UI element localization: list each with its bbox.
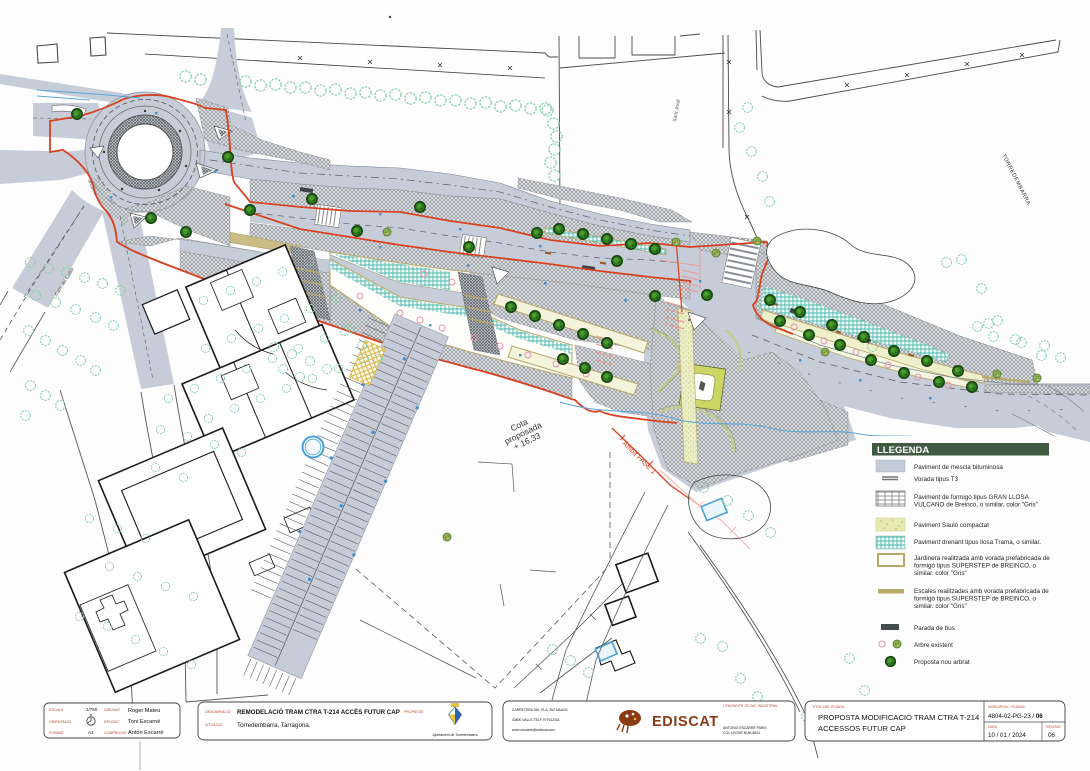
svg-text:COL·LEGIAT NÚM 8624: COL·LEGIAT NÚM 8624 — [723, 730, 760, 735]
svg-text:PROPOSTA MODIFICACIÓ TRAM CTRA: PROPOSTA MODIFICACIÓ TRAM CTRA T-214 — [818, 713, 979, 722]
svg-text:Roger Mateu: Roger Mateu — [128, 708, 160, 714]
svg-text:10 / 01 / 2024: 10 / 01 / 2024 — [988, 732, 1026, 739]
svg-text:Paviment Sauló compactat: Paviment Sauló compactat — [914, 522, 989, 529]
svg-text:Paviment de mescla bituminosa: Paviment de mescla bituminosa — [914, 464, 1003, 471]
svg-text:ACCESSOS FUTUR CAP: ACCESSOS FUTUR CAP — [818, 724, 906, 733]
svg-text:PROPIETAT: PROPIETAT — [404, 710, 425, 714]
svg-text:LLEGENDA: LLEGENDA — [877, 445, 929, 456]
svg-text:formigó tipus SUPERSTEP de BR: formigó tipus SUPERSTEP de BREINCO, o — [914, 563, 1037, 570]
svg-text:Ajuntament de Torredembarra: Ajuntament de Torredembarra — [433, 733, 478, 737]
svg-text:CARRETERA DEL PLA, 262 NAU/31: CARRETERA DEL PLA, 262 NAU/31 — [512, 708, 568, 712]
svg-text:EDISCAT: EDISCAT — [652, 714, 719, 730]
svg-text:FORMAT: FORMAT — [49, 731, 65, 735]
svg-text:Paviment de formigó tipus GRAN: Paviment de formigó tipus GRAN LLOSA — [914, 494, 1030, 501]
svg-text:Escales realitzades amb vorada: Escales realitzades amb vorada prefabric… — [914, 588, 1049, 595]
svg-text:4804-02-PG-23 / 06: 4804-02-PG-23 / 06 — [988, 713, 1043, 720]
svg-text:formigó tipus SUPERSTEP de BR: formigó tipus SUPERSTEP de BREINCO, o — [914, 596, 1037, 603]
svg-text:DATA: DATA — [988, 725, 998, 729]
svg-text:anton.escarre@ediscsa.com: anton.escarre@ediscsa.com — [512, 728, 555, 732]
svg-text:similar. color "Gris": similar. color "Gris" — [914, 570, 967, 577]
svg-text:REVISIÓ: REVISIÓ — [1046, 724, 1061, 729]
svg-text:COMPROVAT: COMPROVAT — [104, 731, 128, 735]
svg-text:SITUACIÓ: SITUACIÓ — [205, 722, 222, 727]
svg-text:REVISAT: REVISAT — [104, 720, 120, 724]
svg-text:ORIENTACIÓ: ORIENTACIÓ — [49, 719, 71, 724]
svg-text:DENOMINACIÓ: DENOMINACIÓ — [205, 709, 231, 714]
svg-text:Jardinera realitzada amb vorad: Jardinera realitzada amb vorada prefabri… — [914, 555, 1050, 562]
svg-text:43800 VALLS TELF 977612: 43800 VALLS TELF 977612341 — [512, 718, 560, 722]
svg-text:Paviment drenant tipus llosa T: Paviment drenant tipus llosa Trama, o si… — [914, 539, 1041, 546]
svg-text:L'ENGINYER TÈCNIC INDUSTRIAL: L'ENGINYER TÈCNIC INDUSTRIAL — [723, 703, 778, 708]
svg-text:similar. color "Gris": similar. color "Gris" — [914, 603, 967, 610]
svg-text:VULCANO de Breinco, o similar,: VULCANO de Breinco, o similar, color "Gr… — [914, 502, 1038, 509]
svg-text:Anton Escarré: Anton Escarré — [128, 730, 163, 736]
svg-text:TÍTOL DEL PLÀNOL: TÍTOL DEL PLÀNOL — [812, 705, 845, 709]
svg-text:ANTONIO ESCARRÉ PARIS: ANTONIO ESCARRÉ PARIS — [723, 725, 767, 730]
svg-text:Arbre existent: Arbre existent — [914, 642, 953, 649]
svg-text:Toni Escarné: Toni Escarné — [128, 719, 160, 725]
svg-text:NOM ARXIU / PLÀNOL: NOM ARXIU / PLÀNOL — [988, 705, 1025, 709]
svg-text:06: 06 — [1048, 732, 1055, 739]
svg-text:1/750: 1/750 — [86, 707, 98, 712]
svg-text:A3: A3 — [88, 730, 94, 735]
svg-text:Proposta nou arbrat: Proposta nou arbrat — [914, 659, 970, 666]
svg-text:Torredembarra, Tarragona.: Torredembarra, Tarragona. — [237, 722, 311, 729]
svg-text:REMODELACIÓ TRAM CTRA T-214 AC: REMODELACIÓ TRAM CTRA T-214 ACCÈS FUTUR … — [237, 708, 400, 716]
svg-text:DIBUIXAT: DIBUIXAT — [104, 708, 121, 712]
svg-text:ESCALA: ESCALA — [49, 708, 64, 712]
svg-text:Parada de bus: Parada de bus — [914, 625, 955, 632]
svg-text:Vorada tipus T3: Vorada tipus T3 — [914, 476, 958, 483]
